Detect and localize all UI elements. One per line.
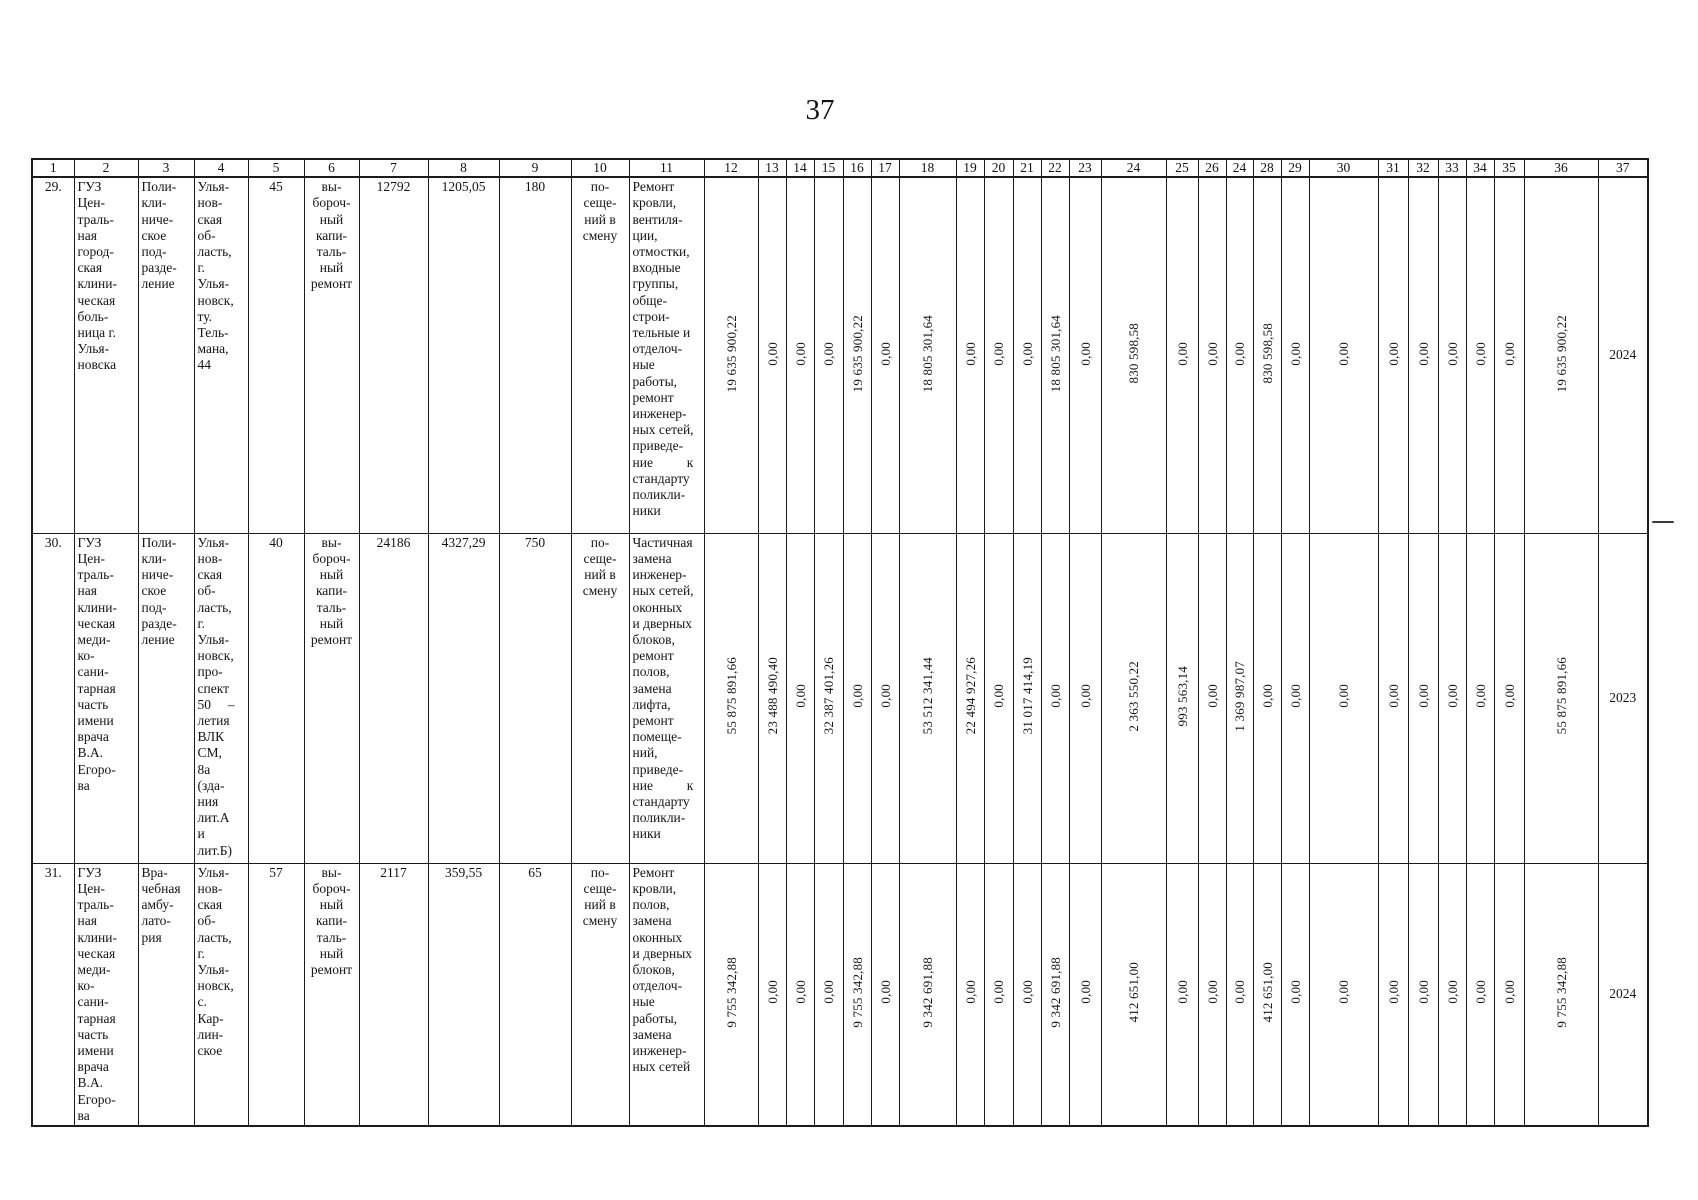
rotated-value: 9 342 691,88	[921, 957, 934, 1028]
column-number-header: 20	[984, 159, 1013, 177]
rotated-value: 0,00	[1503, 684, 1516, 708]
value-cell-col18: 18 805 301,64	[899, 177, 956, 533]
rotated-value: 0,00	[992, 342, 1005, 366]
value-cell-col28: 0,00	[1253, 533, 1281, 863]
works-description-cell: Ремонт кровли, полов, замена оконных и д…	[629, 863, 704, 1126]
rotated-value: 0,00	[794, 684, 807, 708]
value-cell-col31: 0,00	[1378, 533, 1408, 863]
rotated-value: 0,00	[1021, 980, 1034, 1004]
column-number-header: 7	[359, 159, 428, 177]
rotated-value: 0,00	[1446, 684, 1459, 708]
rotated-value: 0,00	[1387, 684, 1400, 708]
rotated-value: 0,00	[1289, 684, 1302, 708]
rotated-value: 0,00	[1079, 342, 1092, 366]
rotated-value: 0,00	[992, 980, 1005, 1004]
rotated-value: 0,00	[1337, 684, 1350, 708]
rotated-value: 0,00	[964, 980, 977, 1004]
value-cell-col24: 830 598,58	[1101, 177, 1166, 533]
value-cell-col32: 0,00	[1408, 533, 1438, 863]
column-number-header: 15	[814, 159, 843, 177]
value-cell-col34: 0,00	[1466, 863, 1494, 1126]
value-cell-col32: 0,00	[1408, 863, 1438, 1126]
value-cell-col20: 0,00	[984, 863, 1013, 1126]
rotated-value: 2 363 550,22	[1127, 661, 1140, 732]
rotated-value: 412 651,00	[1261, 962, 1274, 1023]
area-cell: 40	[248, 533, 304, 863]
value-cell-col29: 0,00	[1281, 533, 1309, 863]
column-number-header: 25	[1166, 159, 1198, 177]
column-number-header: 21	[1013, 159, 1041, 177]
value-cell-col24: 2 363 550,22	[1101, 533, 1166, 863]
column-number-header: 2	[74, 159, 138, 177]
column-number-header: 3	[138, 159, 194, 177]
value-cell-col22: 9 342 691,88	[1041, 863, 1069, 1126]
value-cell-col28: 412 651,00	[1253, 863, 1281, 1126]
rotated-value: 0,00	[879, 980, 892, 1004]
value-cell-col15: 32 387 401,26	[814, 533, 843, 863]
value-cell-col36: 9 755 342,88	[1524, 863, 1598, 1126]
column-number-header: 30	[1309, 159, 1378, 177]
value-cell-col33: 0,00	[1438, 533, 1466, 863]
column-number-header: 10	[571, 159, 629, 177]
rotated-value: 0,00	[1387, 980, 1400, 1004]
estimated-cost-cell: 1205,05	[428, 177, 499, 533]
column-number-header: 13	[758, 159, 786, 177]
address-cell: Улья- нов- ская об- ласть, г. Улья- новс…	[194, 177, 248, 533]
rotated-value: 0,00	[1503, 342, 1516, 366]
value-cell-col27: 1 369 987,07	[1226, 533, 1253, 863]
estimated-cost-cell: 359,55	[428, 863, 499, 1126]
rotated-value: 0,00	[1474, 684, 1487, 708]
rotated-value: 18 805 301,64	[1049, 315, 1062, 392]
year-cell: 2023	[1598, 533, 1648, 863]
capacity-cell: 12792	[359, 177, 428, 533]
column-number-header: 4	[194, 159, 248, 177]
repair-type-cell: вы- бороч- ный капи- таль- ный ремонт	[304, 177, 359, 533]
value-cell-col30: 0,00	[1309, 863, 1378, 1126]
column-number-header: 29	[1281, 159, 1309, 177]
subdivision-cell: Поли- кли- ниче- ское под- разде- ление	[138, 533, 194, 863]
value-cell-col26: 0,00	[1198, 863, 1226, 1126]
value-cell-col26: 0,00	[1198, 177, 1226, 533]
value-cell-col33: 0,00	[1438, 863, 1466, 1126]
rotated-value: 53 512 341,44	[921, 657, 934, 734]
visits-per-shift-cell: 180	[499, 177, 571, 533]
works-description-cell: Ремонт кровли, вентиля- ции, отмостки, в…	[629, 177, 704, 533]
value-cell-col18: 53 512 341,44	[899, 533, 956, 863]
visits-per-shift-cell: 65	[499, 863, 571, 1126]
value-cell-col27: 0,00	[1226, 177, 1253, 533]
rotated-value: 0,00	[1474, 980, 1487, 1004]
column-number-header: 35	[1494, 159, 1524, 177]
row-number-cell: 29.	[32, 177, 74, 533]
table-row: 31.ГУЗ Цен- траль- ная клини- ческая мед…	[32, 863, 1648, 1126]
rotated-value: 0,00	[1206, 342, 1219, 366]
column-number-header: 36	[1524, 159, 1598, 177]
column-number-header: 19	[956, 159, 984, 177]
rotated-value: 23 488 490,40	[766, 657, 779, 734]
rotated-value: 0,00	[1233, 980, 1246, 1004]
column-number-header: 16	[843, 159, 871, 177]
rotated-value: 0,00	[1176, 342, 1189, 366]
column-number-header: 5	[248, 159, 304, 177]
rotated-value: 9 755 342,88	[725, 957, 738, 1028]
value-cell-col30: 0,00	[1309, 533, 1378, 863]
rotated-value: 55 875 891,66	[1555, 657, 1568, 734]
rotated-value: 32 387 401,26	[822, 657, 835, 734]
rotated-value: 9 755 342,88	[851, 957, 864, 1028]
value-cell-col35: 0,00	[1494, 863, 1524, 1126]
rotated-value: 0,00	[1021, 342, 1034, 366]
rotated-value: 0,00	[766, 980, 779, 1004]
rotated-value: 0,00	[992, 684, 1005, 708]
scan-artifact-dash	[1652, 521, 1674, 523]
unit-cell: по- сеще- ний в смену	[571, 533, 629, 863]
value-cell-col16: 9 755 342,88	[843, 863, 871, 1126]
column-number-header: 9	[499, 159, 571, 177]
rotated-value: 0,00	[879, 684, 892, 708]
value-cell-col36: 19 635 900,22	[1524, 177, 1598, 533]
value-cell-col25: 0,00	[1166, 863, 1198, 1126]
column-number-header: 33	[1438, 159, 1466, 177]
rotated-value: 19 635 900,22	[1555, 315, 1568, 392]
rotated-value: 9 755 342,88	[1555, 957, 1568, 1028]
value-cell-col27: 0,00	[1226, 863, 1253, 1126]
rotated-value: 0,00	[1079, 684, 1092, 708]
rotated-value: 0,00	[1337, 342, 1350, 366]
value-cell-col34: 0,00	[1466, 533, 1494, 863]
capacity-cell: 2117	[359, 863, 428, 1126]
rotated-value: 0,00	[851, 684, 864, 708]
column-number-header: 22	[1041, 159, 1069, 177]
table-row: 30.ГУЗ Цен- траль- ная клини- ческая мед…	[32, 533, 1648, 863]
column-number-header: 32	[1408, 159, 1438, 177]
value-cell-col19: 0,00	[956, 177, 984, 533]
rotated-value: 0,00	[1233, 342, 1246, 366]
rotated-value: 0,00	[1206, 980, 1219, 1004]
repair-plan-table: 1234567891011121314151617181920212223242…	[31, 158, 1649, 1127]
rotated-value: 19 635 900,22	[851, 315, 864, 392]
value-cell-col17: 0,00	[871, 863, 899, 1126]
value-cell-col24: 412 651,00	[1101, 863, 1166, 1126]
value-cell-col19: 0,00	[956, 863, 984, 1126]
rotated-value: 0,00	[794, 342, 807, 366]
rotated-value: 0,00	[1417, 342, 1430, 366]
column-number-header: 17	[871, 159, 899, 177]
value-cell-col15: 0,00	[814, 863, 843, 1126]
value-cell-col14: 0,00	[786, 177, 814, 533]
rotated-value: 0,00	[1206, 684, 1219, 708]
rotated-value: 22 494 927,26	[964, 657, 977, 734]
repair-type-cell: вы- бороч- ный капи- таль- ный ремонт	[304, 863, 359, 1126]
column-number-header: 37	[1598, 159, 1648, 177]
rotated-value: 0,00	[964, 342, 977, 366]
column-number-header: 18	[899, 159, 956, 177]
value-cell-col13: 23 488 490,40	[758, 533, 786, 863]
area-cell: 57	[248, 863, 304, 1126]
value-cell-col21: 31 017 414,19	[1013, 533, 1041, 863]
rotated-value: 0,00	[1387, 342, 1400, 366]
value-cell-col25: 993 563,14	[1166, 533, 1198, 863]
rotated-value: 0,00	[1049, 684, 1062, 708]
value-cell-col31: 0,00	[1378, 177, 1408, 533]
column-number-header: 31	[1378, 159, 1408, 177]
value-cell-col22: 18 805 301,64	[1041, 177, 1069, 533]
works-description-cell: Частичная замена инженер- ных сетей, око…	[629, 533, 704, 863]
rotated-value: 31 017 414,19	[1021, 657, 1034, 734]
value-cell-col16: 19 635 900,22	[843, 177, 871, 533]
column-number-header: 26	[1198, 159, 1226, 177]
value-cell-col23: 0,00	[1069, 177, 1101, 533]
rotated-value: 0,00	[1337, 980, 1350, 1004]
capacity-cell: 24186	[359, 533, 428, 863]
rotated-value: 412 651,00	[1127, 962, 1140, 1023]
page-number: 37	[760, 94, 880, 127]
value-cell-col20: 0,00	[984, 177, 1013, 533]
column-number-header: 8	[428, 159, 499, 177]
rotated-value: 0,00	[1417, 980, 1430, 1004]
unit-cell: по- сеще- ний в смену	[571, 863, 629, 1126]
rotated-value: 0,00	[1289, 342, 1302, 366]
value-cell-col30: 0,00	[1309, 177, 1378, 533]
rotated-value: 0,00	[1176, 980, 1189, 1004]
row-number-cell: 31.	[32, 863, 74, 1126]
rotated-value: 0,00	[1417, 684, 1430, 708]
estimated-cost-cell: 4327,29	[428, 533, 499, 863]
value-cell-col32: 0,00	[1408, 177, 1438, 533]
value-cell-col22: 0,00	[1041, 533, 1069, 863]
value-cell-col16: 0,00	[843, 533, 871, 863]
rotated-value: 9 342 691,88	[1049, 957, 1062, 1028]
institution-name-cell: ГУЗ Цен- траль- ная клини- ческая меди- …	[74, 533, 138, 863]
institution-name-cell: ГУЗ Цен- траль- ная клини- ческая меди- …	[74, 863, 138, 1126]
value-cell-col36: 55 875 891,66	[1524, 533, 1598, 863]
column-number-header: 34	[1466, 159, 1494, 177]
visits-per-shift-cell: 750	[499, 533, 571, 863]
table-row: 29.ГУЗ Цен- траль- ная город- ская клини…	[32, 177, 1648, 533]
column-number-header: 24	[1226, 159, 1253, 177]
rotated-value: 0,00	[879, 342, 892, 366]
value-cell-col23: 0,00	[1069, 863, 1101, 1126]
column-number-header: 1	[32, 159, 74, 177]
value-cell-col17: 0,00	[871, 177, 899, 533]
area-cell: 45	[248, 177, 304, 533]
rotated-value: 0,00	[766, 342, 779, 366]
rotated-value: 0,00	[1446, 342, 1459, 366]
year-cell: 2024	[1598, 863, 1648, 1126]
rotated-value: 0,00	[1289, 980, 1302, 1004]
value-cell-col25: 0,00	[1166, 177, 1198, 533]
row-number-cell: 30.	[32, 533, 74, 863]
rotated-value: 0,00	[822, 980, 835, 1004]
rotated-value: 19 635 900,22	[725, 315, 738, 392]
value-cell-col13: 0,00	[758, 177, 786, 533]
value-cell-col34: 0,00	[1466, 177, 1494, 533]
value-cell-col33: 0,00	[1438, 177, 1466, 533]
rotated-value: 0,00	[1474, 342, 1487, 366]
rotated-value: 0,00	[1079, 980, 1092, 1004]
value-cell-col15: 0,00	[814, 177, 843, 533]
value-cell-col21: 0,00	[1013, 177, 1041, 533]
rotated-value: 993 563,14	[1176, 666, 1189, 727]
column-number-header: 11	[629, 159, 704, 177]
value-cell-col28: 830 598,58	[1253, 177, 1281, 533]
column-number-header: 28	[1253, 159, 1281, 177]
unit-cell: по- сеще- ний в смену	[571, 177, 629, 533]
value-cell-col21: 0,00	[1013, 863, 1041, 1126]
rotated-value: 0,00	[1503, 980, 1516, 1004]
rotated-value: 0,00	[1261, 684, 1274, 708]
year-cell: 2024	[1598, 177, 1648, 533]
address-cell: Улья- нов- ская об- ласть, г. Улья- новс…	[194, 533, 248, 863]
address-cell: Улья- нов- ская об- ласть, г. Улья- новс…	[194, 863, 248, 1126]
value-cell-col26: 0,00	[1198, 533, 1226, 863]
value-cell-col18: 9 342 691,88	[899, 863, 956, 1126]
column-number-header: 23	[1069, 159, 1101, 177]
column-number-header: 24	[1101, 159, 1166, 177]
value-cell-col19: 22 494 927,26	[956, 533, 984, 863]
rotated-value: 830 598,58	[1261, 323, 1274, 384]
repair-type-cell: вы- бороч- ный капи- таль- ный ремонт	[304, 533, 359, 863]
value-cell-col31: 0,00	[1378, 863, 1408, 1126]
value-cell-col17: 0,00	[871, 533, 899, 863]
rotated-value: 55 875 891,66	[725, 657, 738, 734]
value-cell-col12: 9 755 342,88	[704, 863, 758, 1126]
subdivision-cell: Поли- кли- ниче- ское под- разде- ление	[138, 177, 194, 533]
value-cell-col35: 0,00	[1494, 533, 1524, 863]
value-cell-col14: 0,00	[786, 863, 814, 1126]
rotated-value: 830 598,58	[1127, 323, 1140, 384]
subdivision-cell: Вра- чебная амбу- лато- рия	[138, 863, 194, 1126]
value-cell-col29: 0,00	[1281, 863, 1309, 1126]
rotated-value: 0,00	[1446, 980, 1459, 1004]
column-number-header: 12	[704, 159, 758, 177]
value-cell-col35: 0,00	[1494, 177, 1524, 533]
rotated-value: 1 369 987,07	[1233, 661, 1246, 732]
value-cell-col29: 0,00	[1281, 177, 1309, 533]
value-cell-col12: 55 875 891,66	[704, 533, 758, 863]
column-number-header: 6	[304, 159, 359, 177]
rotated-value: 18 805 301,64	[921, 315, 934, 392]
column-number-header: 14	[786, 159, 814, 177]
document-page: 37 1234567891011121314151617181920212223…	[0, 0, 1698, 1200]
value-cell-col23: 0,00	[1069, 533, 1101, 863]
rotated-value: 0,00	[794, 980, 807, 1004]
value-cell-col12: 19 635 900,22	[704, 177, 758, 533]
institution-name-cell: ГУЗ Цен- траль- ная город- ская клини- ч…	[74, 177, 138, 533]
value-cell-col13: 0,00	[758, 863, 786, 1126]
rotated-value: 0,00	[822, 342, 835, 366]
value-cell-col20: 0,00	[984, 533, 1013, 863]
value-cell-col14: 0,00	[786, 533, 814, 863]
